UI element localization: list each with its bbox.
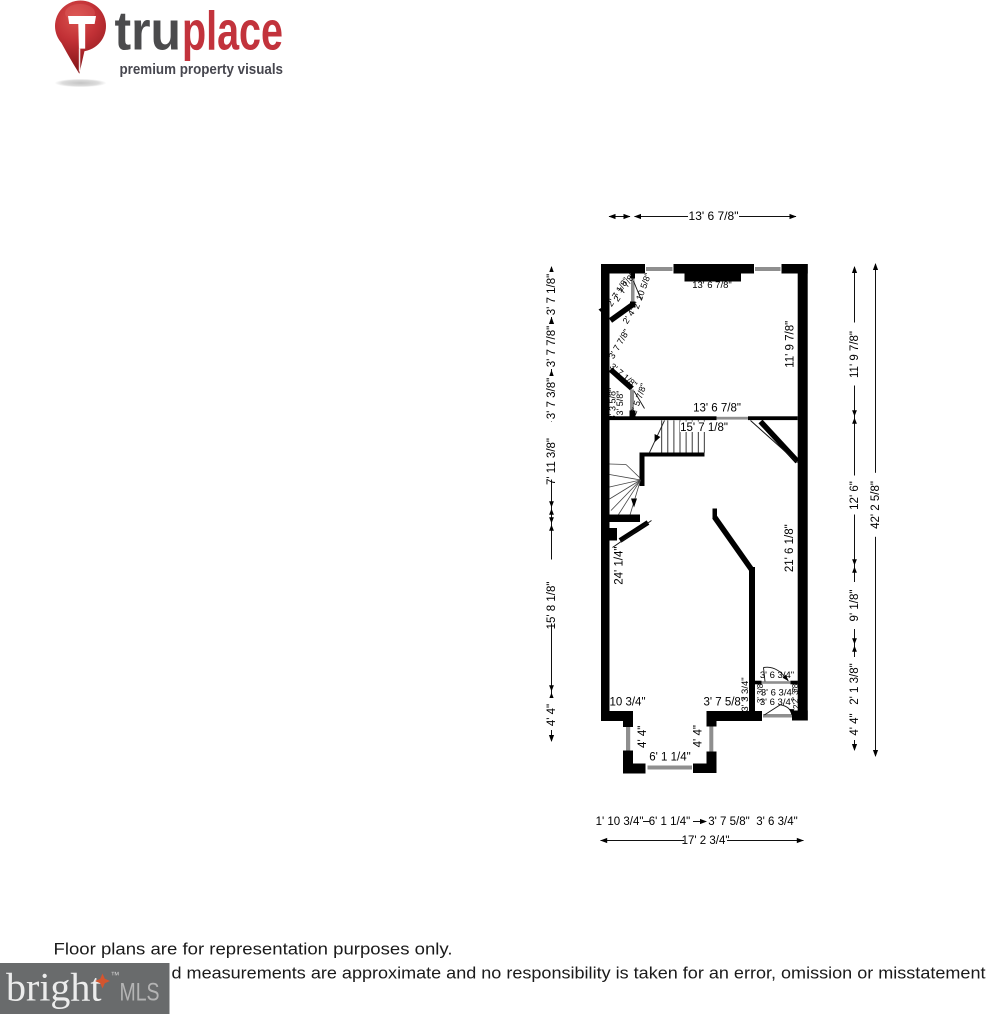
svg-text:7' 11 3/8": 7' 11 3/8" — [546, 438, 558, 485]
svg-text:6' 1 1/4": 6' 1 1/4" — [649, 816, 690, 828]
svg-text:3' 7 7/8": 3' 7 7/8" — [546, 326, 558, 367]
svg-text:MLS: MLS — [120, 979, 160, 1007]
svg-text:premium property visuals: premium property visuals — [120, 62, 284, 78]
svg-text:21' 6 1/8": 21' 6 1/8" — [784, 524, 796, 572]
svg-text:4' 4": 4' 4" — [546, 704, 558, 726]
svg-text:2' 1 3/8": 2' 1 3/8" — [849, 663, 861, 704]
svg-text:d measurements are approximate: d measurements are approximate and no re… — [172, 964, 986, 983]
svg-text:3' 7 5/8": 3' 7 5/8" — [703, 697, 744, 709]
svg-text:9' 1/8": 9' 1/8" — [849, 590, 861, 622]
svg-text:4' 4": 4' 4" — [693, 725, 705, 747]
svg-text:3' 7 5/8": 3' 7 5/8" — [708, 816, 749, 828]
svg-text:15' 8 1/8": 15' 8 1/8" — [546, 582, 558, 630]
svg-text:1' 10 3/4": 1' 10 3/4" — [596, 816, 644, 828]
svg-text:3' 6 3/4": 3' 6 3/4" — [760, 670, 794, 681]
svg-text:11' 9 7/8": 11' 9 7/8" — [785, 321, 797, 368]
svg-text:3' 3 3/4": 3' 3 3/4" — [740, 677, 751, 711]
svg-text:2': 2' — [792, 703, 801, 709]
svg-text:17' 2 3/4": 17' 2 3/4" — [682, 835, 730, 847]
svg-text:10 3/4": 10 3/4" — [609, 697, 645, 709]
svg-text:3' 6 3/4": 3' 6 3/4" — [760, 697, 794, 708]
svg-text:3' 7 1/8": 3' 7 1/8" — [546, 274, 558, 315]
svg-text:12' 6": 12' 6" — [849, 481, 861, 510]
svg-text:13' 6 7/8": 13' 6 7/8" — [693, 403, 741, 415]
svg-text:3' 7 3/8": 3' 7 3/8" — [546, 378, 558, 419]
svg-text:bright: bright — [6, 965, 102, 1010]
svg-text:3' 6 3/4": 3' 6 3/4" — [756, 816, 797, 828]
svg-text:15' 7 1/8": 15' 7 1/8" — [680, 422, 728, 434]
svg-text:4' 4": 4' 4" — [637, 726, 649, 748]
svg-text:2' 3/8": 2' 3/8" — [791, 681, 800, 703]
svg-text:3' 3/8": 3' 3/8" — [756, 681, 765, 703]
svg-text:4' 4": 4' 4" — [849, 713, 861, 735]
svg-text:42' 2 5/8": 42' 2 5/8" — [870, 481, 882, 529]
svg-text:™: ™ — [111, 970, 120, 980]
svg-text:13' 6 7/8": 13' 6 7/8" — [692, 280, 732, 291]
svg-text:Floor plans are for representa: Floor plans are for representation purpo… — [54, 940, 453, 959]
svg-text:13' 6 7/8": 13' 6 7/8" — [689, 209, 739, 223]
svg-text:6' 1 1/4": 6' 1 1/4" — [649, 752, 690, 764]
svg-text:tru: tru — [115, 0, 182, 62]
svg-text:3' 5/8": 3' 5/8" — [615, 391, 625, 416]
svg-text:11' 9 7/8": 11' 9 7/8" — [849, 331, 861, 378]
svg-text:24' 1/4": 24' 1/4" — [614, 546, 626, 584]
svg-text:place: place — [182, 0, 283, 62]
